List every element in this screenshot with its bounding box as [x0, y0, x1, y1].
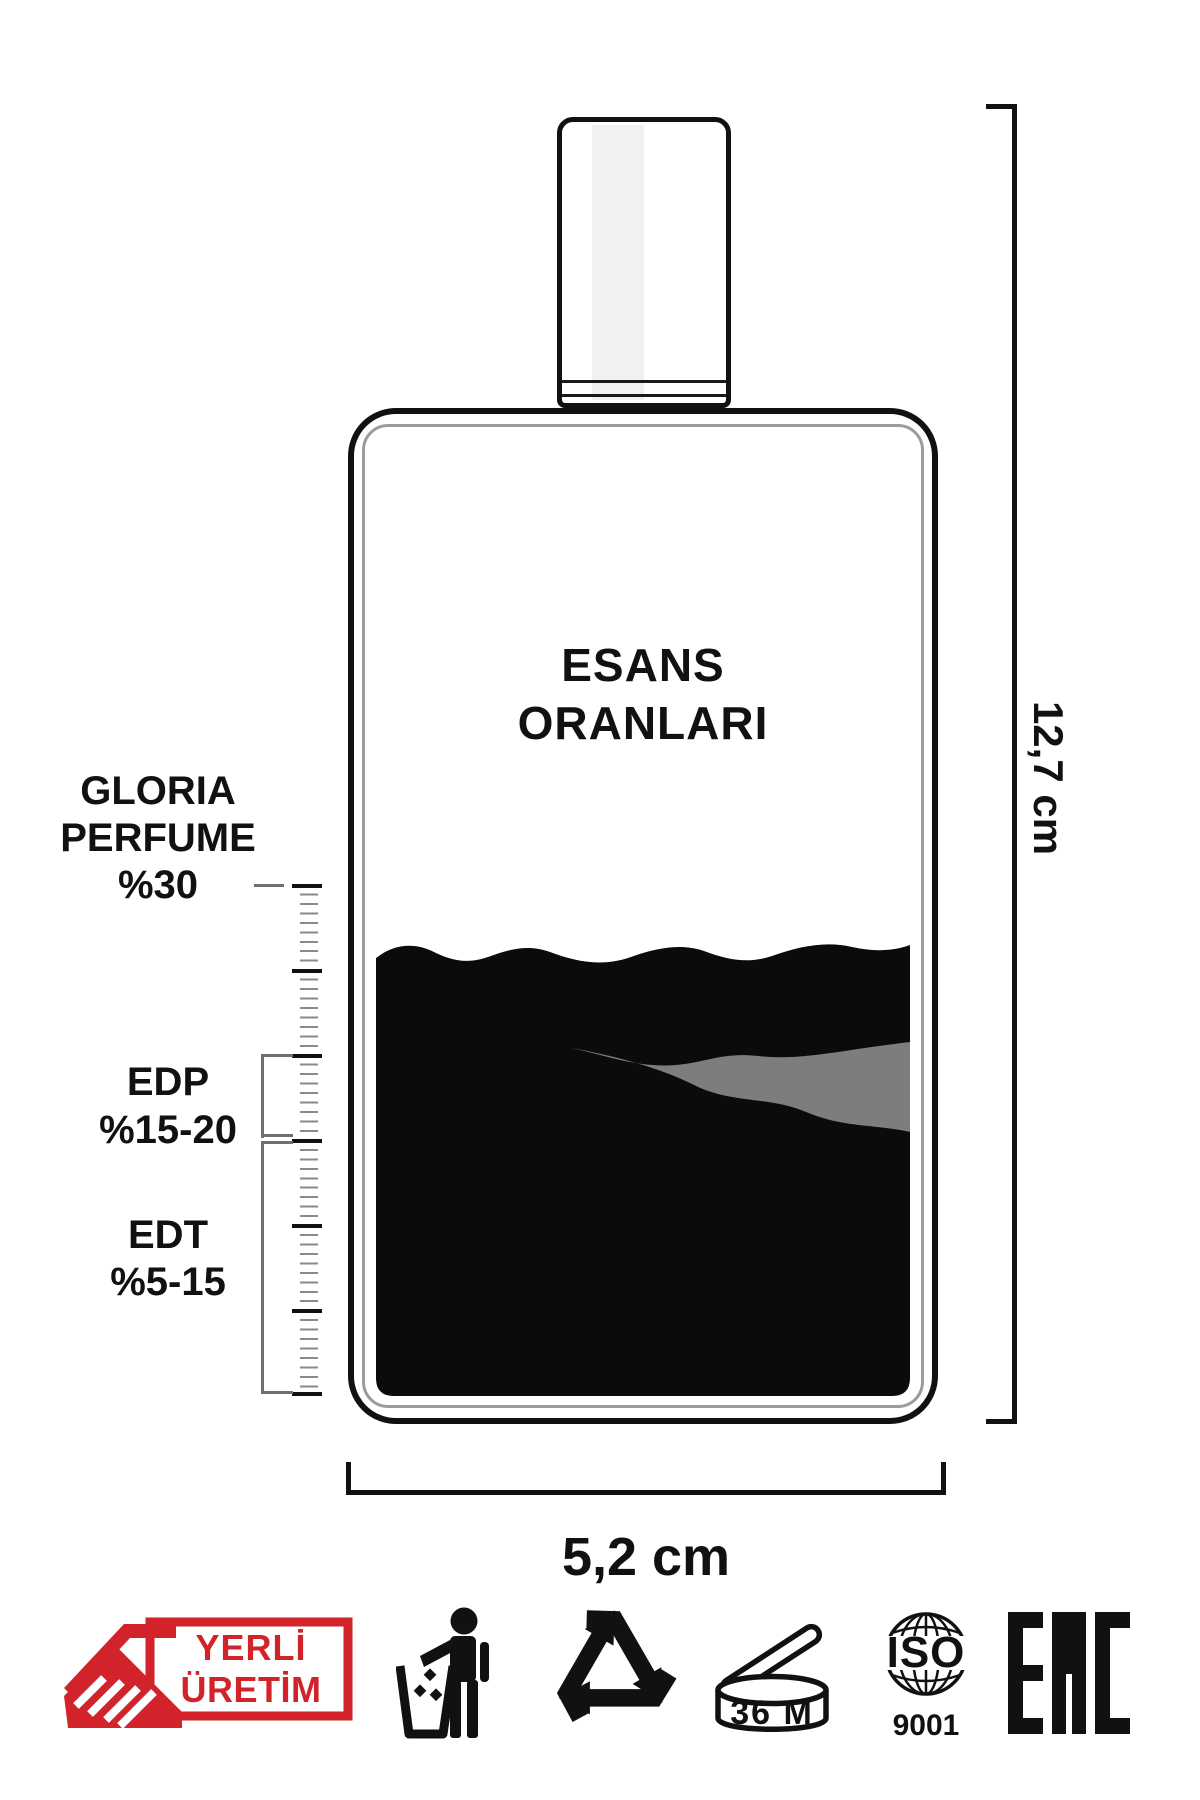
edp-line-2: %15-20 [28, 1106, 308, 1154]
iso-9001-icon: ISO 9001 [866, 1602, 988, 1740]
edt-bracket-bottom [261, 1391, 293, 1394]
eac-icon: EAC [1008, 1612, 1130, 1734]
liquid-fill [376, 930, 910, 1396]
label-edp: EDP %15-20 [28, 1058, 308, 1154]
tidyman-icon [396, 1606, 510, 1740]
width-dimension-label: 5,2 cm [346, 1526, 946, 1588]
edt-line-1: EDT [28, 1212, 308, 1259]
height-dimension-cap-top [986, 104, 1017, 109]
domestic-production-badge: YERLİ ÜRETİM [60, 1602, 358, 1736]
ruler-major-tick [292, 1392, 322, 1396]
ruler-major-tick [292, 884, 322, 888]
edt-line-2: %5-15 [28, 1259, 308, 1306]
ruler-major-tick [292, 1224, 322, 1228]
edt-bracket-vertical [261, 1141, 264, 1394]
width-dimension-cap-left [346, 1462, 351, 1495]
gloria-line-2: PERFUME [18, 815, 298, 862]
eac-glyphs [1008, 1612, 1130, 1734]
width-dimension-line [346, 1490, 946, 1495]
label-edt: EDT %5-15 [28, 1212, 308, 1306]
label-gloria-perfume: GLORIA PERFUME %30 [18, 768, 298, 909]
width-dimension-cap-right [941, 1462, 946, 1495]
iso-9001-text: 9001 [893, 1709, 960, 1740]
badge-text-line-1: YERLİ [195, 1627, 306, 1668]
height-dimension-label: 12,7 cm [1024, 701, 1072, 855]
bottle-cap [557, 117, 731, 408]
ruler-major-tick [292, 1309, 322, 1313]
ruler-major-tick [292, 969, 322, 973]
essence-ratio-title: ESANS ORANLARI [348, 636, 938, 752]
cap-seam-line-top [562, 380, 726, 383]
edp-bracket-top [261, 1054, 293, 1057]
jar-period-label: 36 M [730, 1694, 814, 1732]
cap-seam-line-bottom [562, 394, 726, 397]
iso-text: ISO [887, 1628, 966, 1677]
title-line-1: ESANS [348, 636, 938, 694]
title-line-2: ORANLARI [348, 694, 938, 752]
height-dimension-cap-bottom [986, 1419, 1017, 1424]
edt-bracket-top [261, 1141, 293, 1144]
cap-highlight-stripe [592, 125, 644, 400]
gloria-level-dash [254, 884, 284, 887]
height-dimension-line [1012, 104, 1017, 1424]
infographic-canvas: ESANS ORANLARI GLORIA PERFUME %30 EDP %1… [0, 0, 1200, 1800]
liquid-shape [376, 944, 910, 1396]
edp-line-1: EDP [28, 1058, 308, 1106]
ruler-major-tick [292, 1139, 322, 1143]
ruler-major-tick [292, 1054, 322, 1058]
edp-bracket-vertical [261, 1054, 264, 1138]
recycle-icon [542, 1604, 682, 1742]
badge-text-line-2: ÜRETİM [181, 1669, 322, 1710]
edp-bracket-bottom [261, 1134, 293, 1137]
gloria-line-1: GLORIA [18, 768, 298, 815]
period-after-opening-icon: 36 M [712, 1598, 840, 1740]
